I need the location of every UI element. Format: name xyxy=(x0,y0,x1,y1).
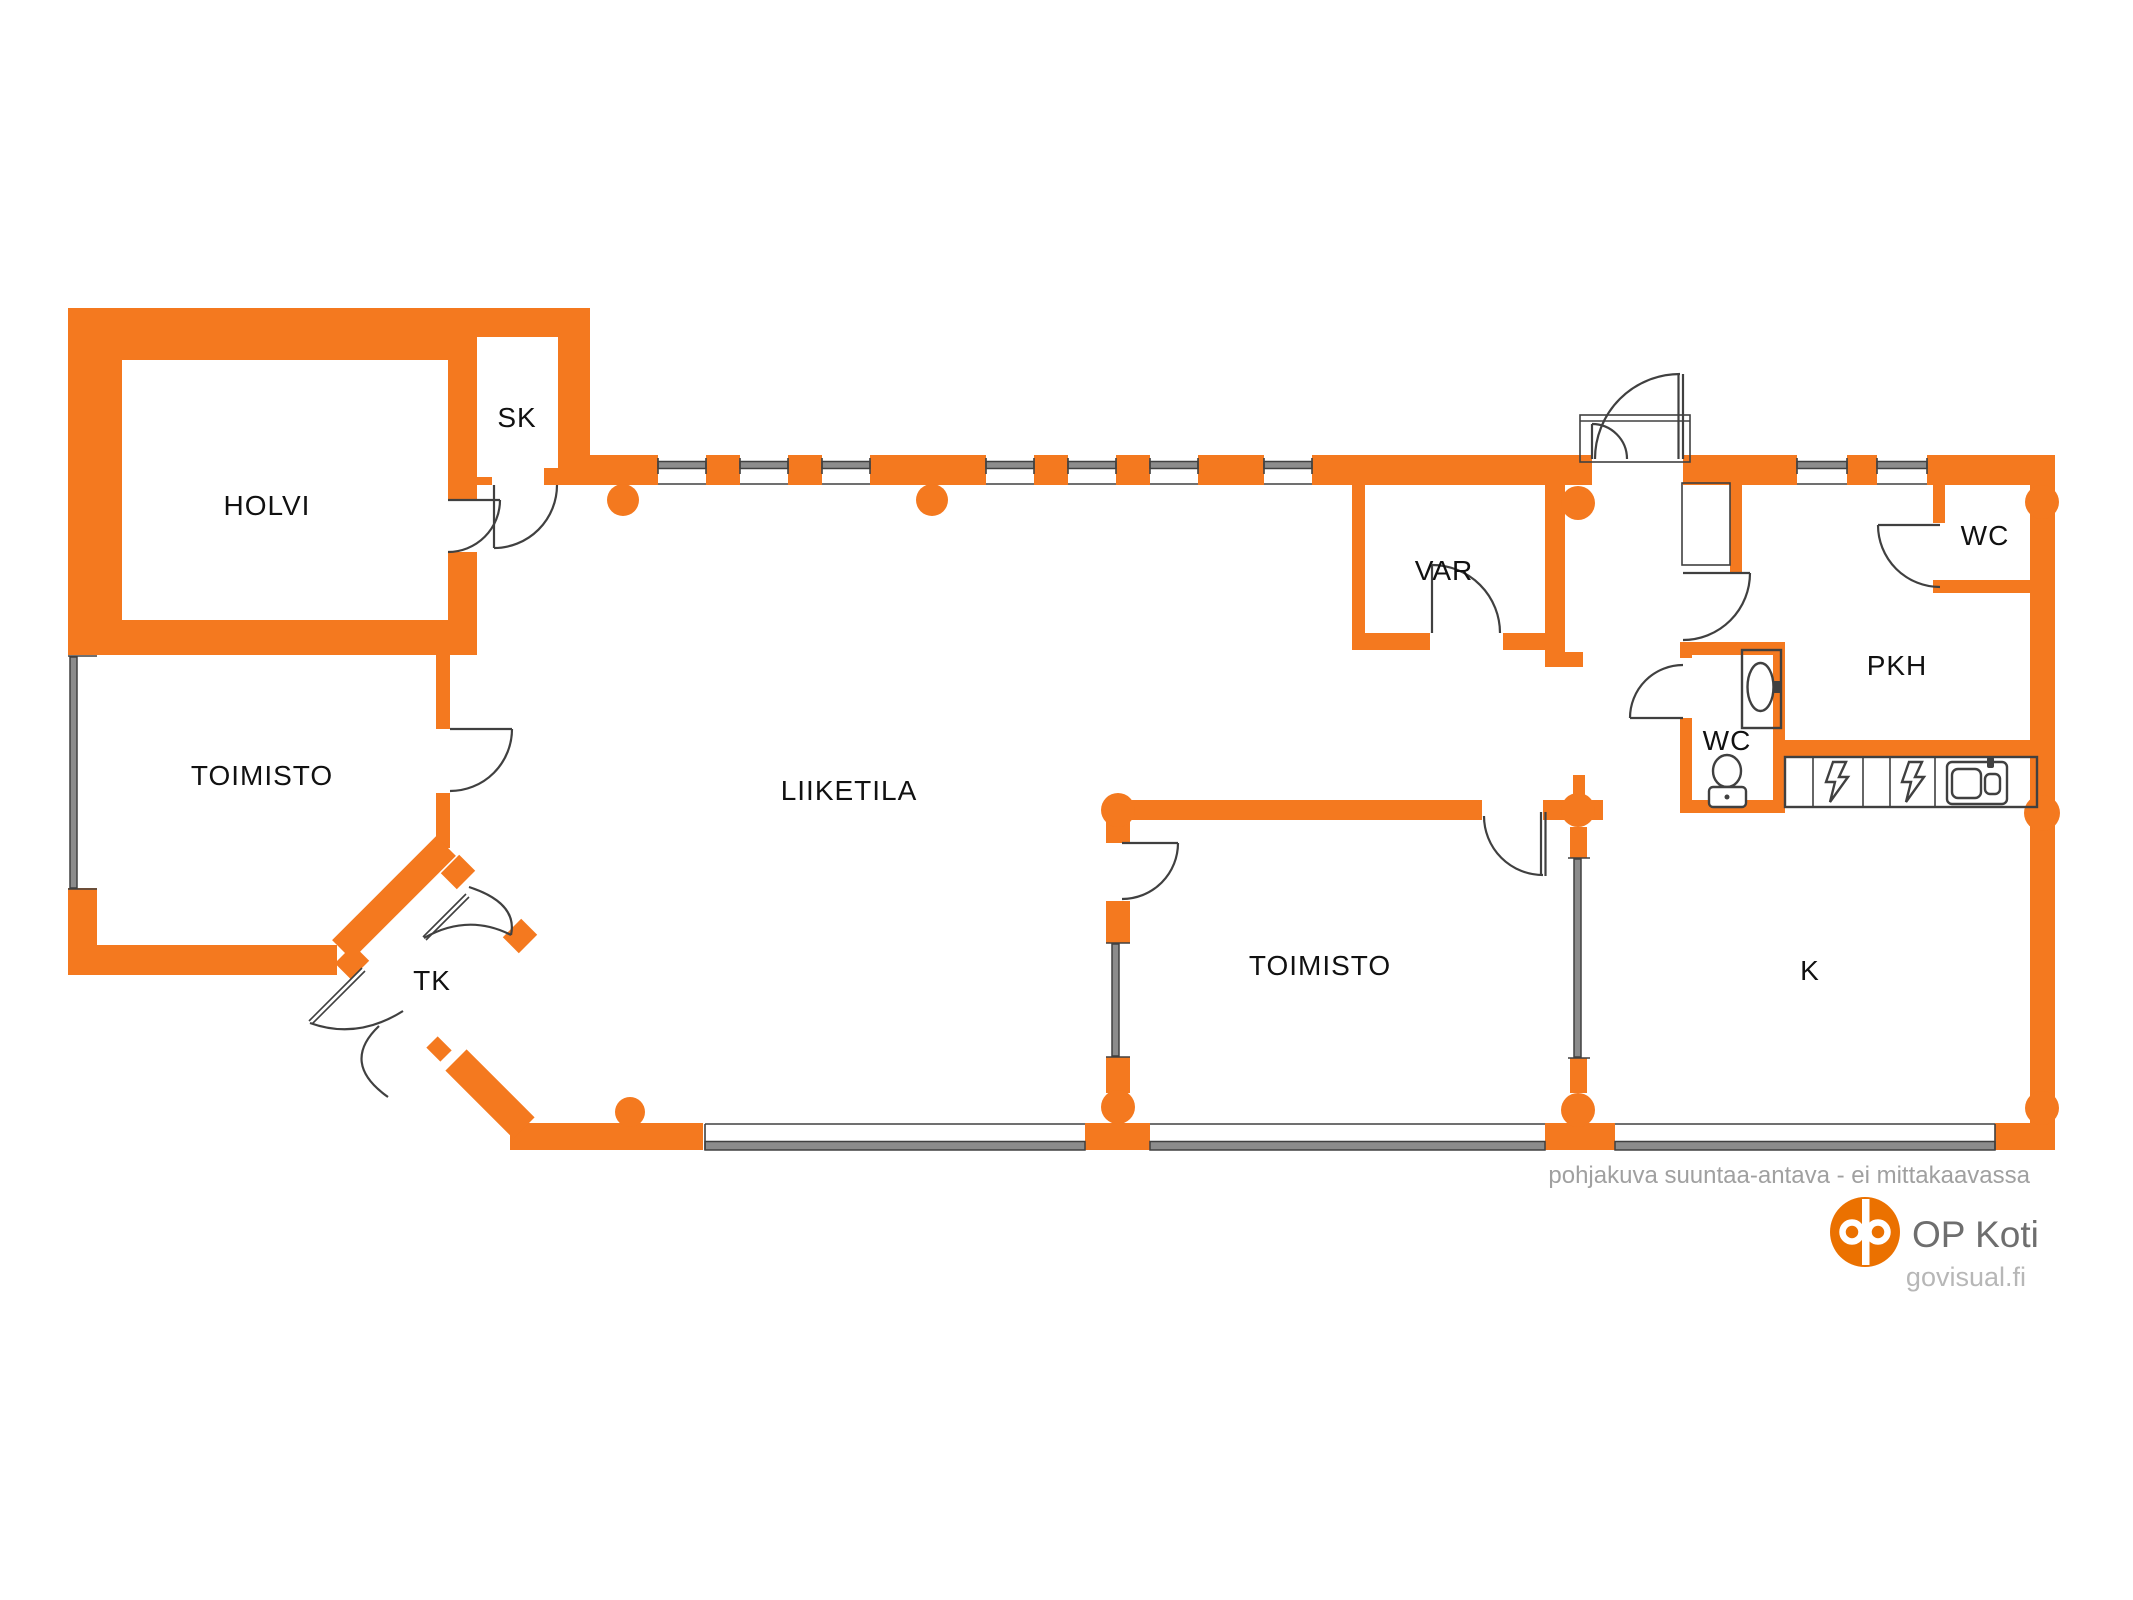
room-label-wc-small: WC xyxy=(1703,725,1752,756)
door-wc-top-right xyxy=(1878,525,1940,587)
door-pkh xyxy=(1683,573,1750,640)
door-toimisto-bottom-top xyxy=(1484,812,1546,876)
kitchen-sink-icon xyxy=(1947,757,2007,804)
op-logo-icon xyxy=(1830,1197,1900,1267)
door-wc-small xyxy=(1630,665,1683,718)
footer: pohjakuva suuntaa-antava - ei mittakaava… xyxy=(1548,1162,2038,1292)
room-label-pkh: PKH xyxy=(1867,650,1928,681)
kitchen-counter xyxy=(1785,757,2037,807)
disclaimer-text: pohjakuva suuntaa-antava - ei mittakaava… xyxy=(1548,1162,2030,1189)
door-tk-outer xyxy=(309,968,403,1097)
room-label-holvi: HOLVI xyxy=(224,490,311,521)
door-toimisto-left xyxy=(450,729,512,791)
entrance-closet xyxy=(1682,483,1730,565)
room-label-var: VAR xyxy=(1415,555,1474,586)
website-text: govisual.fi xyxy=(1906,1262,2026,1292)
floor-plan-page: HOLVI SK TOIMISTO LIIKETILA VAR WC PKH W… xyxy=(0,0,2133,1600)
floor-plan-drawing: HOLVI SK TOIMISTO LIIKETILA VAR WC PKH W… xyxy=(0,0,2133,1600)
door-sk xyxy=(494,485,557,548)
door-entrance xyxy=(1580,374,1690,462)
appliance-icon xyxy=(1902,762,1924,802)
door-tk-inner xyxy=(423,887,512,940)
stove-icon xyxy=(1826,762,1848,802)
room-label-kitchen: K xyxy=(1800,955,1820,986)
room-label-toimisto-left: TOIMISTO xyxy=(191,760,333,791)
room-label-tk: TK xyxy=(413,965,451,996)
room-label-toimisto-bottom: TOIMISTO xyxy=(1249,950,1391,981)
toilet-icon xyxy=(1709,755,1746,807)
room-label-liiketila: LIIKETILA xyxy=(781,775,918,806)
door-toimisto-bottom-side xyxy=(1122,843,1178,899)
room-label-wc-top-right: WC xyxy=(1961,520,2010,551)
brand-text: OP Koti xyxy=(1912,1214,2039,1255)
room-label-sk: SK xyxy=(497,402,536,433)
